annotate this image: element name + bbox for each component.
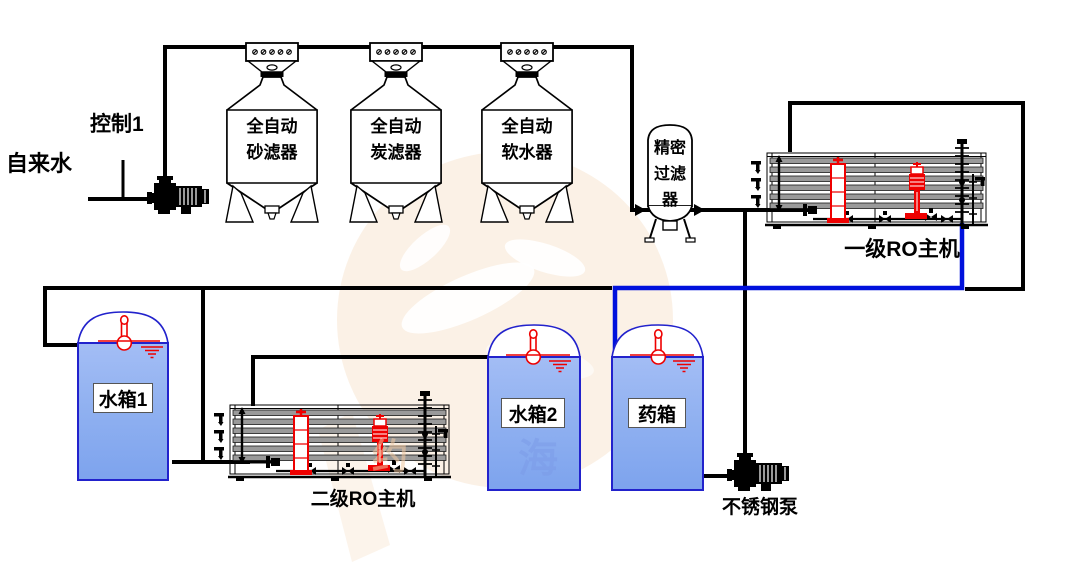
label-carbon-filter: 全自动 炭滤器	[351, 114, 441, 166]
ro1-unit	[751, 139, 988, 229]
diagram-canvas	[0, 0, 1078, 577]
label-softener: 全自动 软水器	[482, 114, 572, 166]
label-chemical-tank: 药箱	[628, 398, 686, 428]
label-precision-filter: 精密 过滤 器	[648, 136, 692, 214]
raw-water-pump	[147, 176, 209, 214]
label-raw-water: 自来水	[6, 150, 72, 179]
label-stainless-pump: 不锈钢泵	[722, 496, 798, 521]
label-control-1: 控制1	[90, 111, 144, 138]
label-ro-stage2: 二级RO主机	[308, 488, 418, 513]
stainless-steel-pump	[727, 453, 789, 491]
process-flow-diagram: 约 海 控制1 自来水 全自动 砂滤器 全自动 炭滤器 全自动 软水器 精密 过…	[0, 0, 1078, 577]
flow-arrow-in	[635, 204, 646, 216]
label-water-tank-1: 水箱1	[93, 383, 153, 413]
flow-arrow-out	[694, 204, 705, 216]
label-ro-stage1: 一级RO主机	[843, 236, 961, 263]
label-water-tank-2: 水箱2	[501, 398, 565, 428]
label-sand-filter: 全自动 砂滤器	[227, 114, 317, 166]
